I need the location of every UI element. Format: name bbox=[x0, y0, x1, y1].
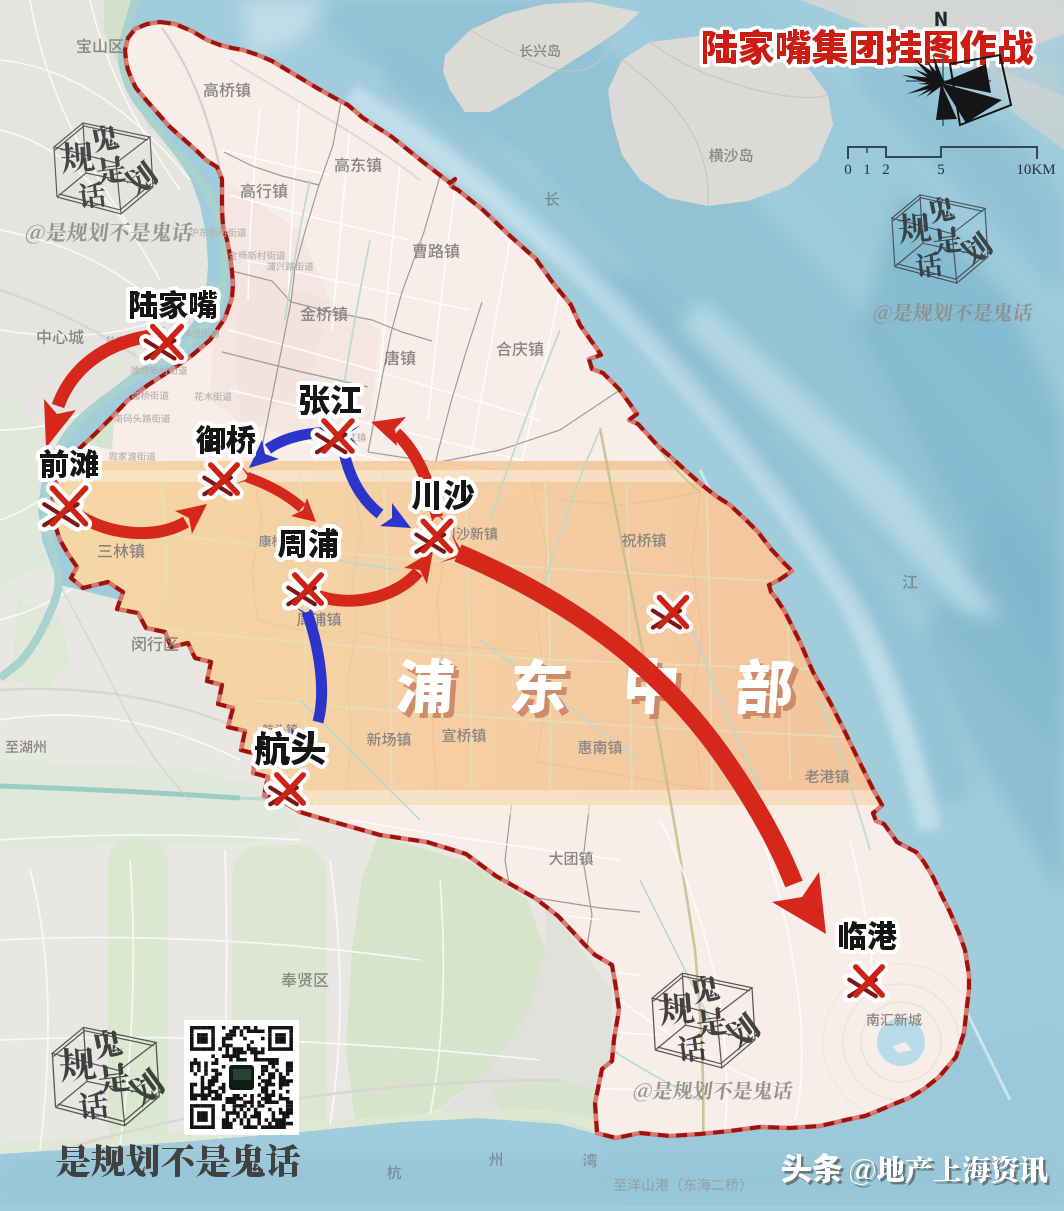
svg-text:5: 5 bbox=[937, 162, 945, 178]
svg-text:1: 1 bbox=[863, 162, 871, 178]
svg-text:2: 2 bbox=[882, 162, 890, 178]
svg-text:0: 0 bbox=[844, 162, 852, 178]
svg-text:10KM: 10KM bbox=[1016, 162, 1055, 178]
